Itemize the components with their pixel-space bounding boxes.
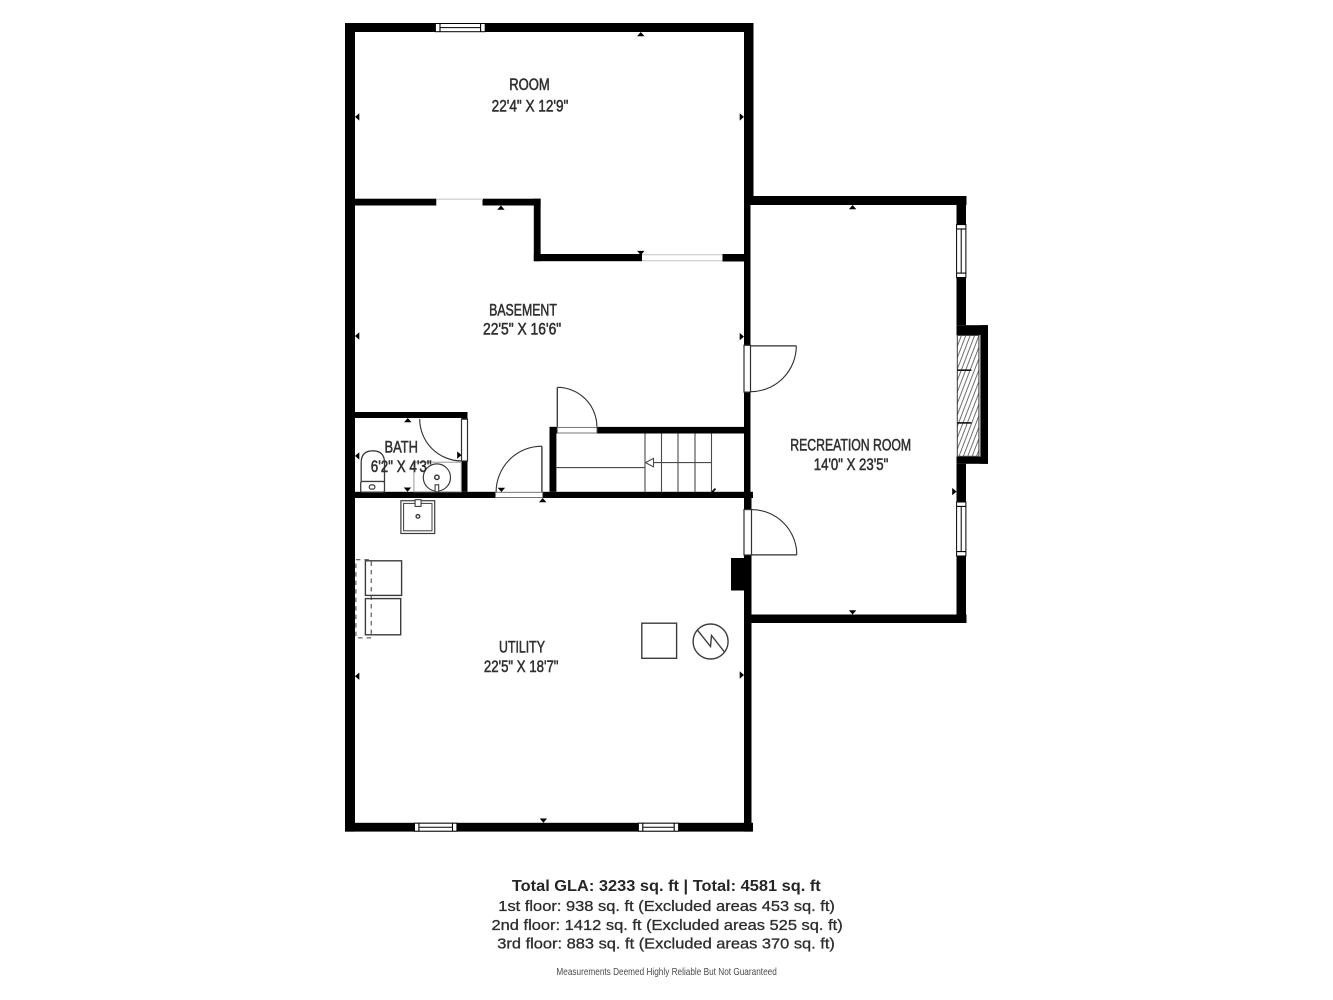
svg-text:Measurements Deemed Highly Rel: Measurements Deemed Highly Reliable But …: [556, 967, 777, 978]
svg-text:22'4" X 12'9": 22'4" X 12'9": [492, 97, 569, 115]
svg-text:BATH: BATH: [385, 438, 418, 456]
svg-text:UTILITY: UTILITY: [499, 638, 545, 656]
svg-text:22'5" X 16'6": 22'5" X 16'6": [483, 321, 561, 339]
svg-text:Total GLA: 3233 sq. ft | Total: Total GLA: 3233 sq. ft | Total: 4581 sq.…: [512, 878, 821, 895]
svg-text:ROOM: ROOM: [509, 76, 549, 94]
svg-text:14'0" X 23'5": 14'0" X 23'5": [814, 456, 889, 474]
svg-text:2nd floor: 1412 sq. ft (Exclud: 2nd floor: 1412 sq. ft (Excluded areas 5…: [492, 918, 843, 934]
svg-text:6'2" X 4'3": 6'2" X 4'3": [371, 458, 432, 476]
svg-text:22'5" X 18'7": 22'5" X 18'7": [484, 658, 559, 676]
svg-text:3rd floor: 883 sq. ft (Exclude: 3rd floor: 883 sq. ft (Excluded areas 37…: [497, 936, 835, 952]
svg-text:BASEMENT: BASEMENT: [489, 301, 557, 319]
svg-text:RECREATION ROOM: RECREATION ROOM: [790, 437, 911, 455]
svg-text:1st floor: 938 sq. ft (Exclude: 1st floor: 938 sq. ft (Excluded areas 45…: [498, 899, 835, 915]
